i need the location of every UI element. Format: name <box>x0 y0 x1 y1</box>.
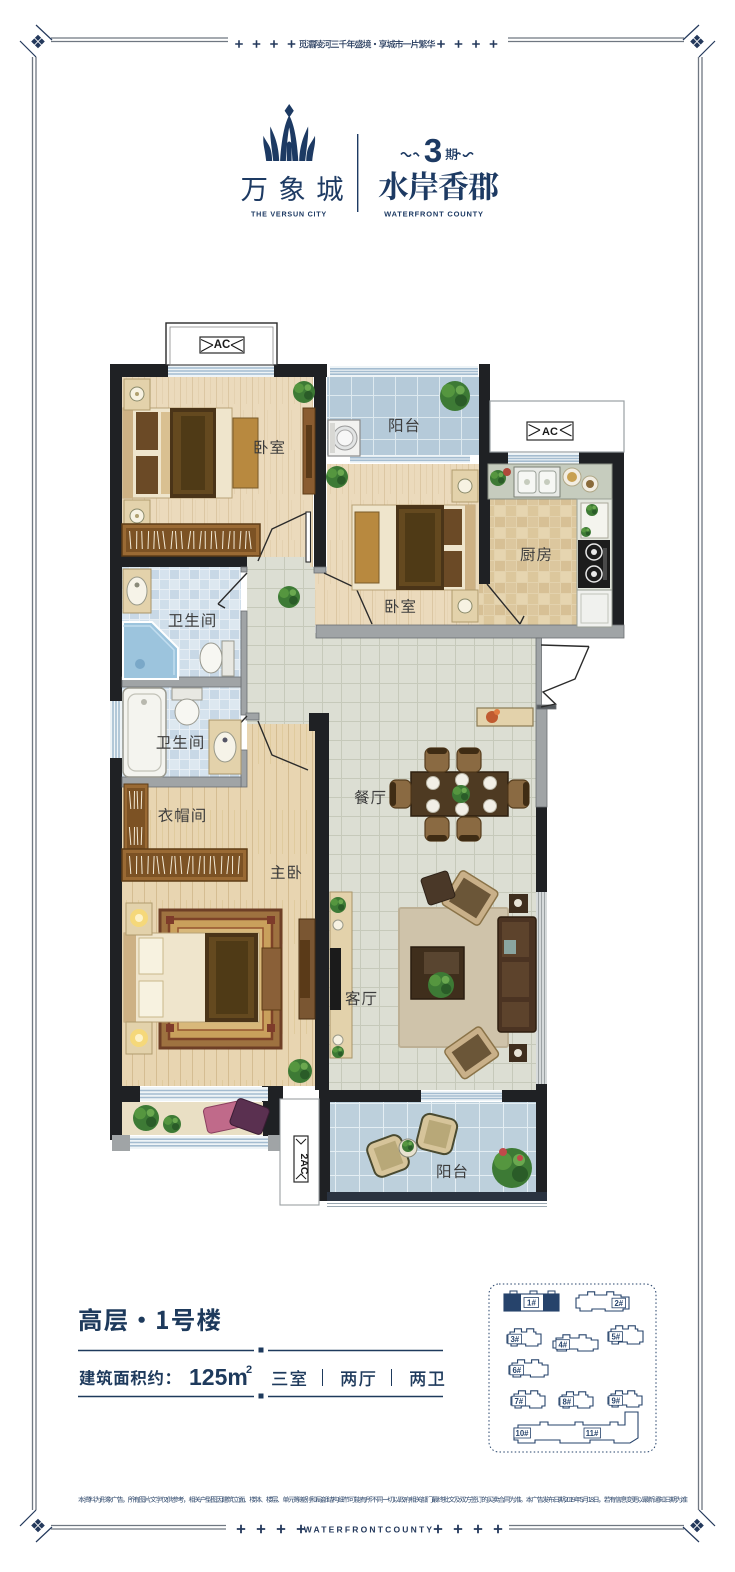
svg-text:125m: 125m <box>189 1364 248 1390</box>
svg-text:8#: 8# <box>562 1398 571 1407</box>
svg-text:2AC: 2AC <box>298 1153 310 1174</box>
svg-text:5#: 5# <box>611 1333 620 1342</box>
svg-text:2#: 2# <box>614 1299 623 1308</box>
svg-text:10#: 10# <box>515 1429 529 1438</box>
svg-text:6#: 6# <box>512 1366 521 1375</box>
svg-text:WATERFRONTCOUNTY: WATERFRONTCOUNTY <box>304 1525 434 1535</box>
svg-text:9#: 9# <box>611 1397 620 1406</box>
svg-text:WATERFRONT COUNTY: WATERFRONT COUNTY <box>384 210 484 219</box>
svg-text:THE VERSUN CITY: THE VERSUN CITY <box>251 210 327 219</box>
svg-text:7#: 7# <box>514 1397 523 1406</box>
svg-text:4#: 4# <box>558 1341 567 1350</box>
svg-text:1#: 1# <box>527 1299 536 1308</box>
svg-text:3#: 3# <box>510 1335 519 1344</box>
svg-text:11#: 11# <box>586 1429 599 1438</box>
svg-text:AC: AC <box>214 339 231 351</box>
svg-text:2: 2 <box>246 1364 252 1376</box>
svg-text:AC: AC <box>542 426 558 438</box>
svg-text:3: 3 <box>424 132 442 169</box>
